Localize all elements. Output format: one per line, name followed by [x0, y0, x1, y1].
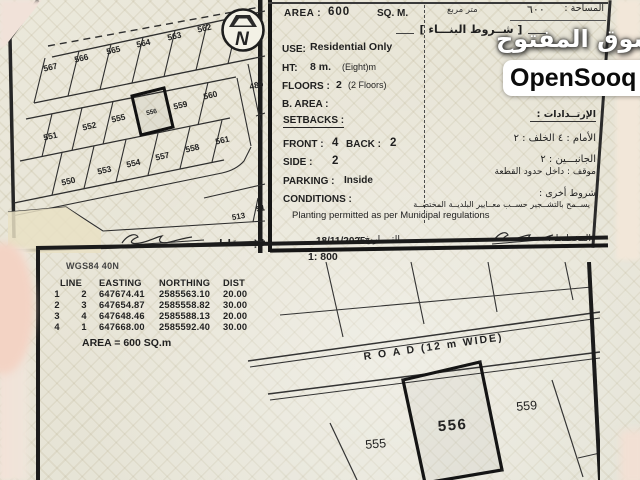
photographed-land-survey-document: N 567 566 565 564 563 562 551 552 555 55…	[0, 0, 640, 480]
road-label: R O A D (12 m WIDE)	[363, 331, 504, 363]
diagram-plot-main-label: 556	[437, 416, 468, 436]
survey-panel: 1: 800 WGS84 40N LINE EASTING NORTHING D…	[0, 0, 640, 480]
photo-background-bottom-right	[620, 430, 640, 480]
diagram-plot-left-label: 555	[365, 436, 387, 452]
photo-background-right	[616, 0, 640, 260]
plot-diagram: R O A D (12 m WIDE) 556 555 559	[38, 262, 600, 480]
diagram-plot-right-label: 559	[516, 398, 538, 414]
survey-panel-right-border	[589, 262, 600, 480]
